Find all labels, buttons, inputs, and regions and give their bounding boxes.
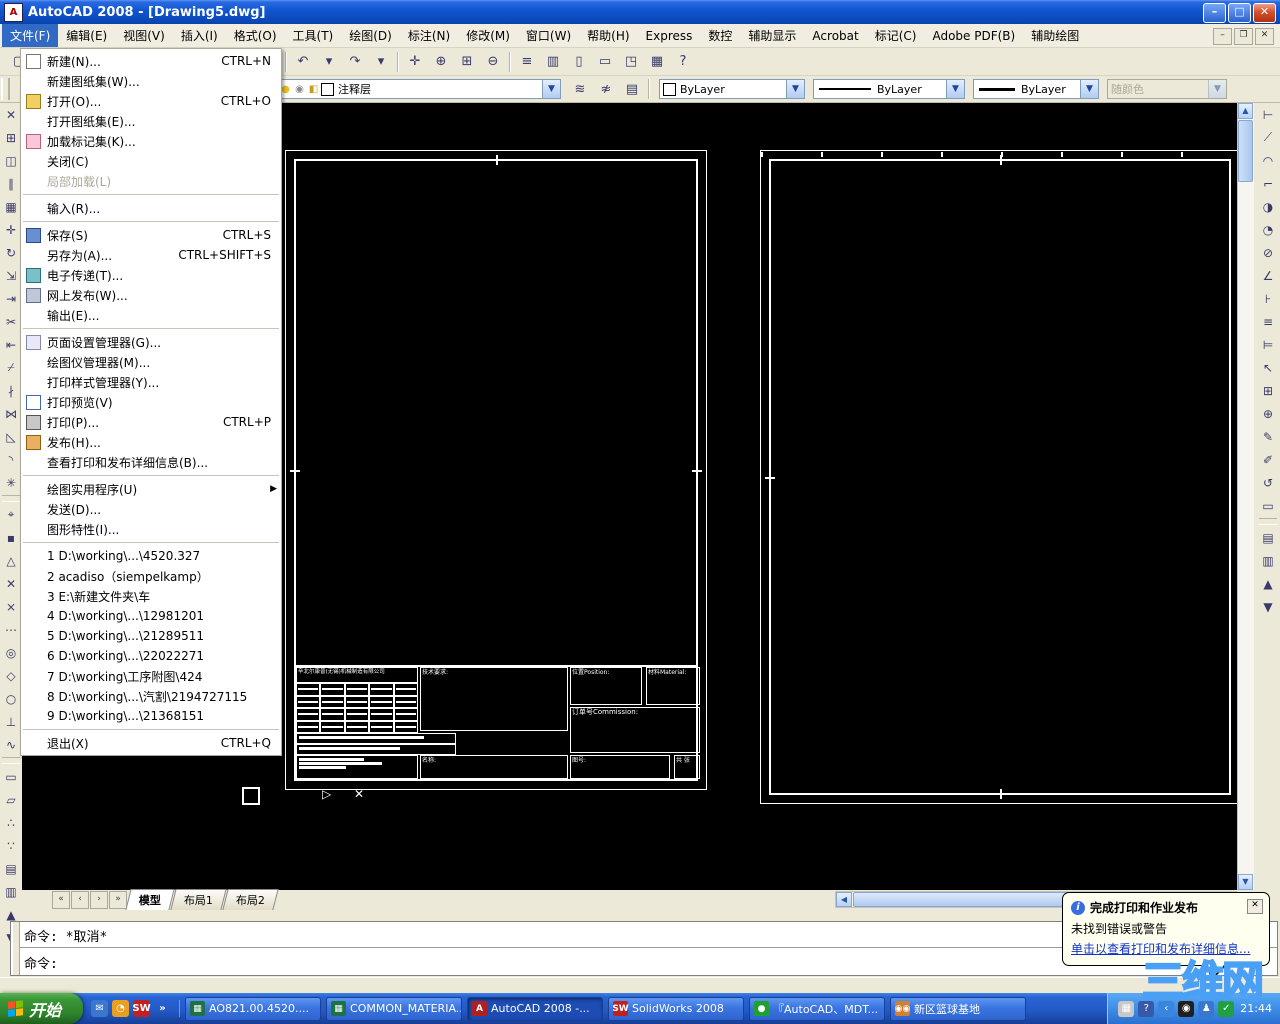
keyboard-icon[interactable]: ▦ — [1118, 1001, 1134, 1017]
file-menu-item-plot[interactable]: 打印(P)...CTRL+P — [21, 412, 281, 432]
menu-item-label: 打印样式管理器(Y)... — [47, 374, 279, 391]
menu-file[interactable]: 文件(F) — [2, 24, 58, 47]
layer-color-swatch — [321, 83, 334, 96]
tolerance-cell — [345, 696, 369, 709]
no-icon — [23, 374, 43, 390]
menu-item-label: 保存(S) — [47, 227, 211, 244]
menu-window[interactable]: 窗口(W) — [518, 24, 579, 47]
task-excel-2[interactable]: ▦COMMON_MATERIA... — [326, 997, 462, 1021]
draworder-back-icon[interactable]: ▥ — [0, 880, 23, 903]
no-icon — [23, 113, 43, 129]
tolerance-grid — [296, 683, 418, 733]
no-icon — [23, 588, 43, 604]
menu-item-label: 绘图仪管理器(M)... — [47, 354, 279, 371]
toolbar-separator — [285, 52, 287, 72]
toolbar-separator — [2, 495, 20, 502]
task-label: AutoCAD 2008 -... — [491, 1002, 590, 1015]
no-icon — [23, 688, 43, 704]
tolerance-cell — [320, 708, 344, 721]
publish-icon — [23, 434, 43, 450]
menu-item-label: 页面设置管理器(G)... — [47, 334, 279, 351]
file-menu-dropdown: 新建(N)...CTRL+N新建图纸集(W)...打开(O)...CTRL+O打… — [20, 48, 282, 756]
taskbar: 开始 ✉◔SW» ▦AO821.00.4520....▦COMMON_MATER… — [0, 993, 1280, 1024]
file-menu-item-save[interactable]: 保存(S)CTRL+S — [21, 225, 281, 245]
lineweight-combo-value: ByLayer — [1021, 83, 1066, 96]
menu-item-label: 打印(P)... — [47, 414, 211, 431]
dim-text-edit-icon[interactable]: ✐ — [1257, 448, 1280, 471]
lineweight-combo[interactable]: ByLayer ▼ — [973, 79, 1099, 99]
menu-item-label: 另存为(A)... — [47, 247, 166, 264]
tolerance-cell — [296, 708, 320, 721]
task-label: SolidWorks 2008 — [632, 1002, 724, 1015]
redo-icon[interactable]: ↷ — [342, 49, 368, 75]
file-menu-item-open-sheet-set[interactable]: 打开图纸集(E)... — [21, 111, 281, 131]
toolbar-grip[interactable] — [1, 78, 10, 100]
title-block-company: 辛北尔康普(无锡)机械制造有限公司 — [296, 667, 418, 683]
triangle-marker: ▷ — [322, 787, 331, 801]
tool-palettes-icon[interactable]: ▯ — [566, 49, 592, 75]
task-autocad-icon: A — [472, 1001, 487, 1016]
menu-draw[interactable]: 绘图(D) — [341, 24, 400, 47]
menu-item-label: 新建(N)... — [47, 53, 209, 70]
no-icon — [23, 648, 43, 664]
dim-update-icon[interactable]: ↺ — [1257, 471, 1280, 494]
layer-lock-icon: ◧ — [307, 83, 320, 96]
no-icon — [23, 668, 43, 684]
color-combo[interactable]: ByLayer ▼ — [659, 79, 805, 99]
center-mark-top-2 — [1000, 155, 1002, 165]
file-menu-item-exit[interactable]: 退出(X)CTRL+Q — [21, 733, 281, 753]
redo-dropdown-icon[interactable]: ▾ — [368, 49, 394, 75]
menu-item-label: 发送(D)... — [47, 501, 279, 518]
menu-separator — [23, 221, 279, 222]
menu-dimension[interactable]: 标注(N) — [400, 24, 458, 47]
toolbar-separator — [2, 757, 20, 764]
center-mark-left — [290, 470, 300, 472]
tab-layout1[interactable]: 布局1 — [170, 889, 226, 910]
mdi-restore-button[interactable]: ❐ — [1234, 28, 1253, 45]
tolerance-cell — [296, 683, 320, 696]
task-excel-1[interactable]: ▦AO821.00.4520.... — [185, 997, 321, 1021]
file-menu-item-drawing-properties[interactable]: 图形特性(I)... — [21, 519, 281, 539]
no-icon — [23, 568, 43, 584]
toolbar-separator — [509, 52, 511, 72]
color-swatch-icon — [663, 83, 676, 96]
dim-angular-icon[interactable]: ∠ — [1257, 264, 1280, 287]
title-block-note-1 — [296, 733, 456, 744]
task-qq-group[interactable]: ◉◉新区篮球基地 — [890, 997, 1026, 1021]
file-menu-item-etransmit[interactable]: 电子传递(T)... — [21, 265, 281, 285]
layer-combo[interactable]: ○●◉◧ 注释层 ▼ — [261, 79, 561, 99]
title-block-name: 名称: — [420, 755, 568, 779]
zoom-previous-icon[interactable]: ⊖ — [480, 49, 506, 75]
scroll-left-button[interactable]: ◀ — [836, 892, 852, 907]
layer-combo-value: 注释层 — [338, 81, 371, 97]
menu-bar: – ❐ ✕ 文件(F)编辑(E)视图(V)插入(I)格式(O)工具(T)绘图(D… — [0, 24, 1280, 48]
no-icon — [23, 307, 43, 323]
menu-item-shortcut: CTRL+N — [221, 54, 271, 68]
quick-launch: ✉◔SW» — [83, 1000, 180, 1017]
no-icon — [23, 247, 43, 263]
plotstyle-combo-value: 随颜色 — [1111, 81, 1144, 97]
file-menu-item-recent-2[interactable]: 2 acadiso（siempelkamp） — [21, 566, 281, 586]
menu-view[interactable]: 视图(V) — [115, 24, 173, 47]
menu-format[interactable]: 格式(O) — [226, 24, 285, 47]
menu-item-label: 输入(R)... — [47, 200, 279, 217]
web-icon — [23, 287, 43, 303]
tolerance-cell — [394, 683, 418, 696]
file-menu-item-import[interactable]: 输入(R)... — [21, 198, 281, 218]
title-block-tech-req: 技术要求: — [420, 667, 568, 731]
menu-separator — [23, 542, 279, 543]
tolerance-cell — [394, 708, 418, 721]
markup-icon — [23, 133, 43, 149]
quick-dimension-icon[interactable]: ⊦ — [1257, 287, 1280, 310]
menu-item-label: 4 D:\working\...\12981201 — [47, 609, 279, 623]
menu-item-label: 关闭(C) — [47, 153, 279, 170]
start-button[interactable]: 开始 — [0, 993, 83, 1024]
windows-logo-icon — [8, 1000, 24, 1018]
menu-item-label: 新建图纸集(W)... — [47, 73, 279, 90]
solidworks-icon[interactable]: SW — [133, 1000, 150, 1017]
scroll-down-button[interactable]: ▼ — [1238, 874, 1253, 890]
help-icon[interactable]: ? — [670, 49, 696, 75]
dim-edit-icon[interactable]: ✎ — [1257, 425, 1280, 448]
scroll-up-button[interactable]: ▲ — [1238, 103, 1253, 119]
tolerance-cell — [345, 708, 369, 721]
outlook-icon[interactable]: ✉ — [91, 1000, 108, 1017]
markup-set-manager-icon[interactable]: ◳ — [618, 49, 644, 75]
dim-jogged-icon[interactable]: ◔ — [1257, 218, 1280, 241]
file-menu-item-recent-6[interactable]: 6 D:\working\...\22022271 — [21, 646, 281, 666]
status-bar — [0, 977, 1280, 994]
tab-nav-last[interactable]: » — [109, 891, 127, 909]
task-label: 『AutoCAD、MDT... — [773, 1001, 878, 1017]
task-autocad[interactable]: AAutoCAD 2008 -... — [467, 997, 603, 1021]
plotstyle-combo: 随颜色 ▼ — [1107, 79, 1227, 99]
center-mark-bottom-2 — [1000, 789, 1002, 799]
file-menu-item-recent-5[interactable]: 5 D:\working\...\21289511 — [21, 626, 281, 646]
file-menu-item-send[interactable]: 发送(D)... — [21, 499, 281, 519]
dim-ordinate-icon[interactable]: ⌐ — [1257, 172, 1280, 195]
plotstyle-combo-arrow-icon: ▼ — [1208, 80, 1226, 98]
balloon-message: 未找到错误或警告 — [1071, 920, 1261, 937]
menu-item-label: 图形特性(I)... — [47, 521, 279, 538]
menu-express[interactable]: Express — [638, 26, 701, 46]
menu-acrobat[interactable]: Acrobat — [804, 26, 866, 46]
layer-plot-icon: ◉ — [293, 83, 306, 96]
center-mark-right — [692, 470, 702, 472]
tab-nav-prev[interactable]: ‹ — [71, 891, 89, 909]
no-icon — [23, 354, 43, 370]
send-to-back-icon[interactable]: ▥ — [1257, 549, 1280, 572]
dim-continue-icon[interactable]: ⊨ — [1257, 333, 1280, 356]
tolerance-cell — [394, 721, 418, 734]
file-menu-item-publish[interactable]: 发布(H)... — [21, 432, 281, 452]
chevron-icon[interactable]: » — [154, 1000, 171, 1017]
vertical-scroll-thumb[interactable] — [1238, 120, 1253, 182]
menu-item-label: 绘图实用程序(U) — [47, 481, 279, 498]
file-menu-item-recent-1[interactable]: 1 D:\working\...\4520.327 — [21, 546, 281, 566]
file-menu-item-recent-8[interactable]: 8 D:\working\...\汽割\2194727115 — [21, 686, 281, 706]
clock-icon[interactable]: ◔ — [112, 1000, 129, 1017]
no-icon — [23, 608, 43, 624]
task-solidworks[interactable]: SWSolidWorks 2008 — [608, 997, 744, 1021]
menu-help[interactable]: 帮助(H) — [579, 24, 637, 47]
title-bar: A AutoCAD 2008 - [Drawing5.dwg] – □ ✕ — [0, 0, 1280, 24]
menu-separator — [23, 328, 279, 329]
center-mark-left-2 — [765, 477, 775, 479]
menu-separator — [23, 475, 279, 476]
tolerance-cell — [345, 683, 369, 696]
menu-separator — [23, 729, 279, 730]
menu-edit[interactable]: 编辑(E) — [58, 24, 115, 47]
menu-item-label: 输出(E)... — [47, 307, 279, 324]
title-block-note-2 — [296, 744, 456, 755]
layer-previous-icon[interactable]: ≉ — [593, 76, 619, 102]
file-menu-item-publish-to-web[interactable]: 网上发布(W)... — [21, 285, 281, 305]
tab-model[interactable]: 模型 — [125, 889, 174, 910]
bring-to-front-icon[interactable]: ▤ — [1257, 526, 1280, 549]
open-icon — [23, 93, 43, 109]
undo-icon[interactable]: ↶ — [290, 49, 316, 75]
center-mark-icon[interactable]: ⊕ — [1257, 402, 1280, 425]
dim-diameter-icon[interactable]: ⊘ — [1257, 241, 1280, 264]
menu-item-label: 查看打印和发布详细信息(B)... — [47, 454, 279, 471]
tolerance-cell — [296, 696, 320, 709]
toolbar-separator — [397, 52, 399, 72]
file-menu-item-partial-load: 局部加载(L) — [21, 171, 281, 191]
file-menu-item-close[interactable]: 关闭(C) — [21, 151, 281, 171]
task-qq-chat-icon: ● — [754, 1001, 769, 1016]
no-icon — [23, 200, 43, 216]
task-qq-chat[interactable]: ●『AutoCAD、MDT... — [749, 997, 885, 1021]
tab-layout2[interactable]: 布局2 — [222, 889, 278, 910]
no-icon — [23, 708, 43, 724]
cross-marker: ✕ — [354, 787, 364, 801]
menu-item-shortcut: CTRL+SHIFT+S — [178, 248, 271, 262]
no-icon — [23, 153, 43, 169]
tolerance-cell — [394, 696, 418, 709]
command-window-grip[interactable] — [11, 922, 20, 975]
color-combo-arrow-icon[interactable]: ▼ — [786, 80, 804, 98]
send-under-icon[interactable]: ▼ — [1257, 595, 1280, 618]
file-menu-item-page-setup-manager[interactable]: 页面设置管理器(G)... — [21, 332, 281, 352]
task-excel-1-icon: ▦ — [190, 1001, 205, 1016]
window-title: AutoCAD 2008 - [Drawing5.dwg] — [28, 5, 266, 20]
tolerance-cell — [320, 683, 344, 696]
menu-item-label: 打开(O)... — [47, 93, 209, 110]
mdi-close-button[interactable]: ✕ — [1255, 28, 1274, 45]
drawing-frame-1-inner-border: 辛北尔康普(无锡)机械制造有限公司 技术要求: 名称: 位置Position: … — [294, 159, 698, 781]
maximize-button[interactable]: □ — [1228, 3, 1251, 23]
watermark-logo: 三维网 — [1142, 948, 1262, 1009]
linetype-combo[interactable]: ByLayer ▼ — [813, 79, 965, 99]
zoom-window-icon[interactable]: ⊞ — [454, 49, 480, 75]
ucs-marker — [242, 787, 260, 805]
menu-item-shortcut: CTRL+O — [221, 94, 271, 108]
dim-arc-length-icon[interactable]: ◠ — [1257, 149, 1280, 172]
title-block-sheet: 共 张 — [674, 755, 700, 779]
file-menu-item-save-as[interactable]: 另存为(A)...CTRL+SHIFT+S — [21, 245, 281, 265]
no-icon — [23, 501, 43, 517]
balloon-title: 完成打印和作业发布 — [1090, 899, 1198, 916]
tolerance-cell — [369, 721, 393, 734]
tolerance-icon[interactable]: ⊞ — [1257, 379, 1280, 402]
no-icon — [23, 628, 43, 644]
dim-linear-icon[interactable]: ⊢ — [1257, 103, 1280, 126]
task-label: AO821.00.4520.... — [209, 1002, 309, 1015]
close-button[interactable]: ✕ — [1253, 3, 1276, 23]
title-block-commission: 订单号Commission: — [570, 707, 700, 753]
title-block-material: 材料Material: — [646, 667, 700, 705]
file-menu-item-export[interactable]: 输出(E)... — [21, 305, 281, 325]
properties-palette-icon[interactable]: ≡ — [514, 49, 540, 75]
file-menu-item-recent-7[interactable]: 7 D:\working\工序附图\424 — [21, 666, 281, 686]
menu-item-label: 3 E:\新建文件夹\车 — [47, 588, 279, 605]
menu-item-label: 2 acadiso（siempelkamp） — [47, 568, 279, 585]
task-excel-2-icon: ▦ — [331, 1001, 346, 1016]
menu-item-label: 网上发布(W)... — [47, 287, 279, 304]
divide-icon[interactable]: ∴ — [0, 811, 23, 834]
no-icon — [23, 481, 43, 497]
title-block-drawing-no: 图号: — [570, 755, 670, 779]
menu-tools[interactable]: 工具(T) — [285, 24, 342, 47]
drawing-frame-2 — [760, 150, 1237, 804]
toolbar-separator — [1259, 518, 1277, 525]
undo-dropdown-icon[interactable]: ▾ — [316, 49, 342, 75]
layer-properties-manager-icon[interactable]: ▤ — [619, 76, 645, 102]
layer-combo-arrow-icon[interactable]: ▼ — [542, 80, 560, 98]
no-icon — [23, 521, 43, 537]
file-menu-item-plot-style-manager[interactable]: 打印样式管理器(Y)... — [21, 372, 281, 392]
menu-item-label: 5 D:\working\...\21289511 — [47, 629, 279, 643]
dim-radius-icon[interactable]: ◑ — [1257, 195, 1280, 218]
lineweight-combo-arrow-icon[interactable]: ▼ — [1080, 80, 1098, 98]
new-icon — [23, 53, 43, 69]
file-menu-item-plotter-manager[interactable]: 绘图仪管理器(M)... — [21, 352, 281, 372]
no-icon — [23, 454, 43, 470]
dim-baseline-icon[interactable]: ≡ — [1257, 310, 1280, 333]
save-icon — [23, 227, 43, 243]
designcenter-icon[interactable]: ▥ — [540, 49, 566, 75]
color-combo-value: ByLayer — [680, 83, 725, 96]
menu-item-label: 电子传递(T)... — [47, 267, 279, 284]
lineweight-sample — [979, 88, 1015, 91]
submenu-arrow-icon: ▶ — [270, 484, 277, 494]
autocad-app-icon: A — [4, 3, 23, 22]
menu-markup[interactable]: 标记(C) — [867, 24, 925, 47]
tab-nav-first[interactable]: « — [52, 891, 70, 909]
file-menu-item-open[interactable]: 打开(O)...CTRL+O — [21, 91, 281, 111]
pan-icon[interactable]: ✛ — [402, 49, 428, 75]
quickcalc-icon[interactable]: ▦ — [644, 49, 670, 75]
tolerance-cell — [369, 696, 393, 709]
menu-item-shortcut: CTRL+Q — [221, 736, 271, 750]
menu-modify[interactable]: 修改(M) — [458, 24, 518, 47]
linetype-sample — [819, 88, 871, 90]
tolerance-cell — [369, 708, 393, 721]
bring-above-icon[interactable]: ▲ — [1257, 572, 1280, 595]
info-icon: i — [1071, 901, 1085, 915]
dim-style-icon[interactable]: ▭ — [1257, 494, 1280, 517]
vertical-scrollbar[interactable]: ▲ ▼ — [1237, 103, 1254, 890]
menu-insert[interactable]: 插入(I) — [173, 24, 226, 47]
file-menu-item-new[interactable]: 新建(N)...CTRL+N — [21, 51, 281, 71]
task-qq-group-icon: ◉◉ — [895, 1001, 910, 1016]
no-icon — [23, 73, 43, 89]
menu-item-label: 7 D:\working\工序附图\424 — [47, 668, 279, 685]
menu-cnc[interactable]: 数控 — [700, 24, 740, 47]
menu-item-label: 局部加载(L) — [47, 173, 279, 190]
zoom-realtime-icon[interactable]: ⊕ — [428, 49, 454, 75]
minimize-button[interactable]: – — [1203, 3, 1226, 23]
menu-item-label: 发布(H)... — [47, 434, 279, 451]
modify-osnap-toolbar: ✕⊞◫∥▦✛↻⇲⇥✂⇤⌿∤⋈◺◝✳⌖▪△✕⨯⋯◎◇○⊥∿▭▱∴∵▤▥▲▼ — [0, 103, 22, 977]
menu-aux-display[interactable]: 辅助显示 — [740, 24, 804, 47]
print-icon — [23, 414, 43, 430]
menu-aux-draw[interactable]: 辅助绘图 — [1023, 24, 1087, 47]
preview-icon — [23, 394, 43, 410]
task-label: COMMON_MATERIA... — [350, 1002, 462, 1015]
tolerance-cell — [345, 721, 369, 734]
boundary-icon[interactable]: ▱ — [0, 788, 23, 811]
linetype-combo-value: ByLayer — [877, 83, 922, 96]
region-icon[interactable]: ▭ — [0, 765, 23, 788]
menu-item-label: 1 D:\working\...\4520.327 — [47, 549, 279, 563]
menu-item-label: 9 D:\working\...\21368151 — [47, 709, 279, 723]
linetype-combo-arrow-icon[interactable]: ▼ — [946, 80, 964, 98]
center-mark-top — [496, 155, 498, 165]
balloon-close-button[interactable]: ✕ — [1247, 899, 1263, 914]
file-menu-item-recent-3[interactable]: 3 E:\新建文件夹\车 — [21, 586, 281, 606]
file-menu-item-load-markup-set[interactable]: 加载标记集(K)... — [21, 131, 281, 151]
dim-aligned-icon[interactable]: ⟋ — [1257, 126, 1280, 149]
no-icon — [23, 548, 43, 564]
file-menu-item-recent-9[interactable]: 9 D:\working\...\21368151 — [21, 706, 281, 726]
dimension-draworder-toolbar: ⊢⟋◠⌐◑◔⊘∠⊦≡⊨↖⊞⊕✎✐↺▭▤▥▲▼ — [1256, 103, 1280, 977]
menu-item-label: 退出(X) — [47, 735, 209, 752]
title-block: 辛北尔康普(无锡)机械制造有限公司 技术要求: 名称: 位置Position: … — [296, 665, 696, 779]
title-block-position: 位置Position: — [570, 667, 642, 705]
title-block-revision-table — [296, 755, 418, 779]
sheet-set-manager-icon[interactable]: ▭ — [592, 49, 618, 75]
menu-item-shortcut: CTRL+S — [223, 228, 271, 242]
tolerance-cell — [320, 721, 344, 734]
file-menu-item-recent-4[interactable]: 4 D:\working\...\12981201 — [21, 606, 281, 626]
tolerance-cell — [296, 721, 320, 734]
measure-icon[interactable]: ∵ — [0, 834, 23, 857]
menu-separator — [23, 194, 279, 195]
task-solidworks-icon: SW — [613, 1001, 628, 1016]
make-object-layer-current-icon[interactable]: ≋ — [567, 76, 593, 102]
tolerance-cell — [369, 683, 393, 696]
file-menu-item-view-plot-details[interactable]: 查看打印和发布详细信息(B)... — [21, 452, 281, 472]
menu-item-label: 加载标记集(K)... — [47, 133, 279, 150]
menu-adobe-pdf[interactable]: Adobe PDF(B) — [924, 26, 1023, 46]
file-menu-item-new-sheet-set[interactable]: 新建图纸集(W)... — [21, 71, 281, 91]
pagesetup-icon — [23, 334, 43, 350]
file-menu-item-drawing-utilities[interactable]: 绘图实用程序(U)▶ — [21, 479, 281, 499]
quick-leader-icon[interactable]: ↖ — [1257, 356, 1280, 379]
file-menu-item-plot-preview[interactable]: 打印预览(V) — [21, 392, 281, 412]
menu-item-label: 6 D:\working\...\22022271 — [47, 649, 279, 663]
tab-nav-next[interactable]: › — [90, 891, 108, 909]
draworder-front-icon[interactable]: ▤ — [0, 857, 23, 880]
mdi-minimize-button[interactable]: – — [1213, 28, 1232, 45]
menu-item-label: 打印预览(V) — [47, 394, 279, 411]
drawing-frame-1: 辛北尔康普(无锡)机械制造有限公司 技术要求: 名称: 位置Position: … — [285, 150, 707, 790]
